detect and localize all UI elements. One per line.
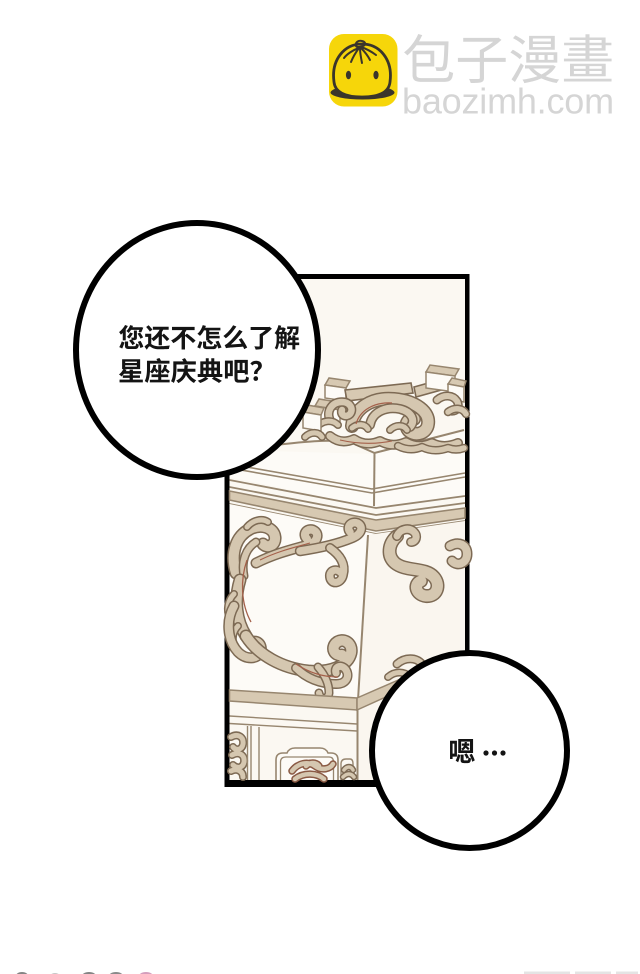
- svg-text:baozimh.com: baozimh.com: [402, 81, 614, 122]
